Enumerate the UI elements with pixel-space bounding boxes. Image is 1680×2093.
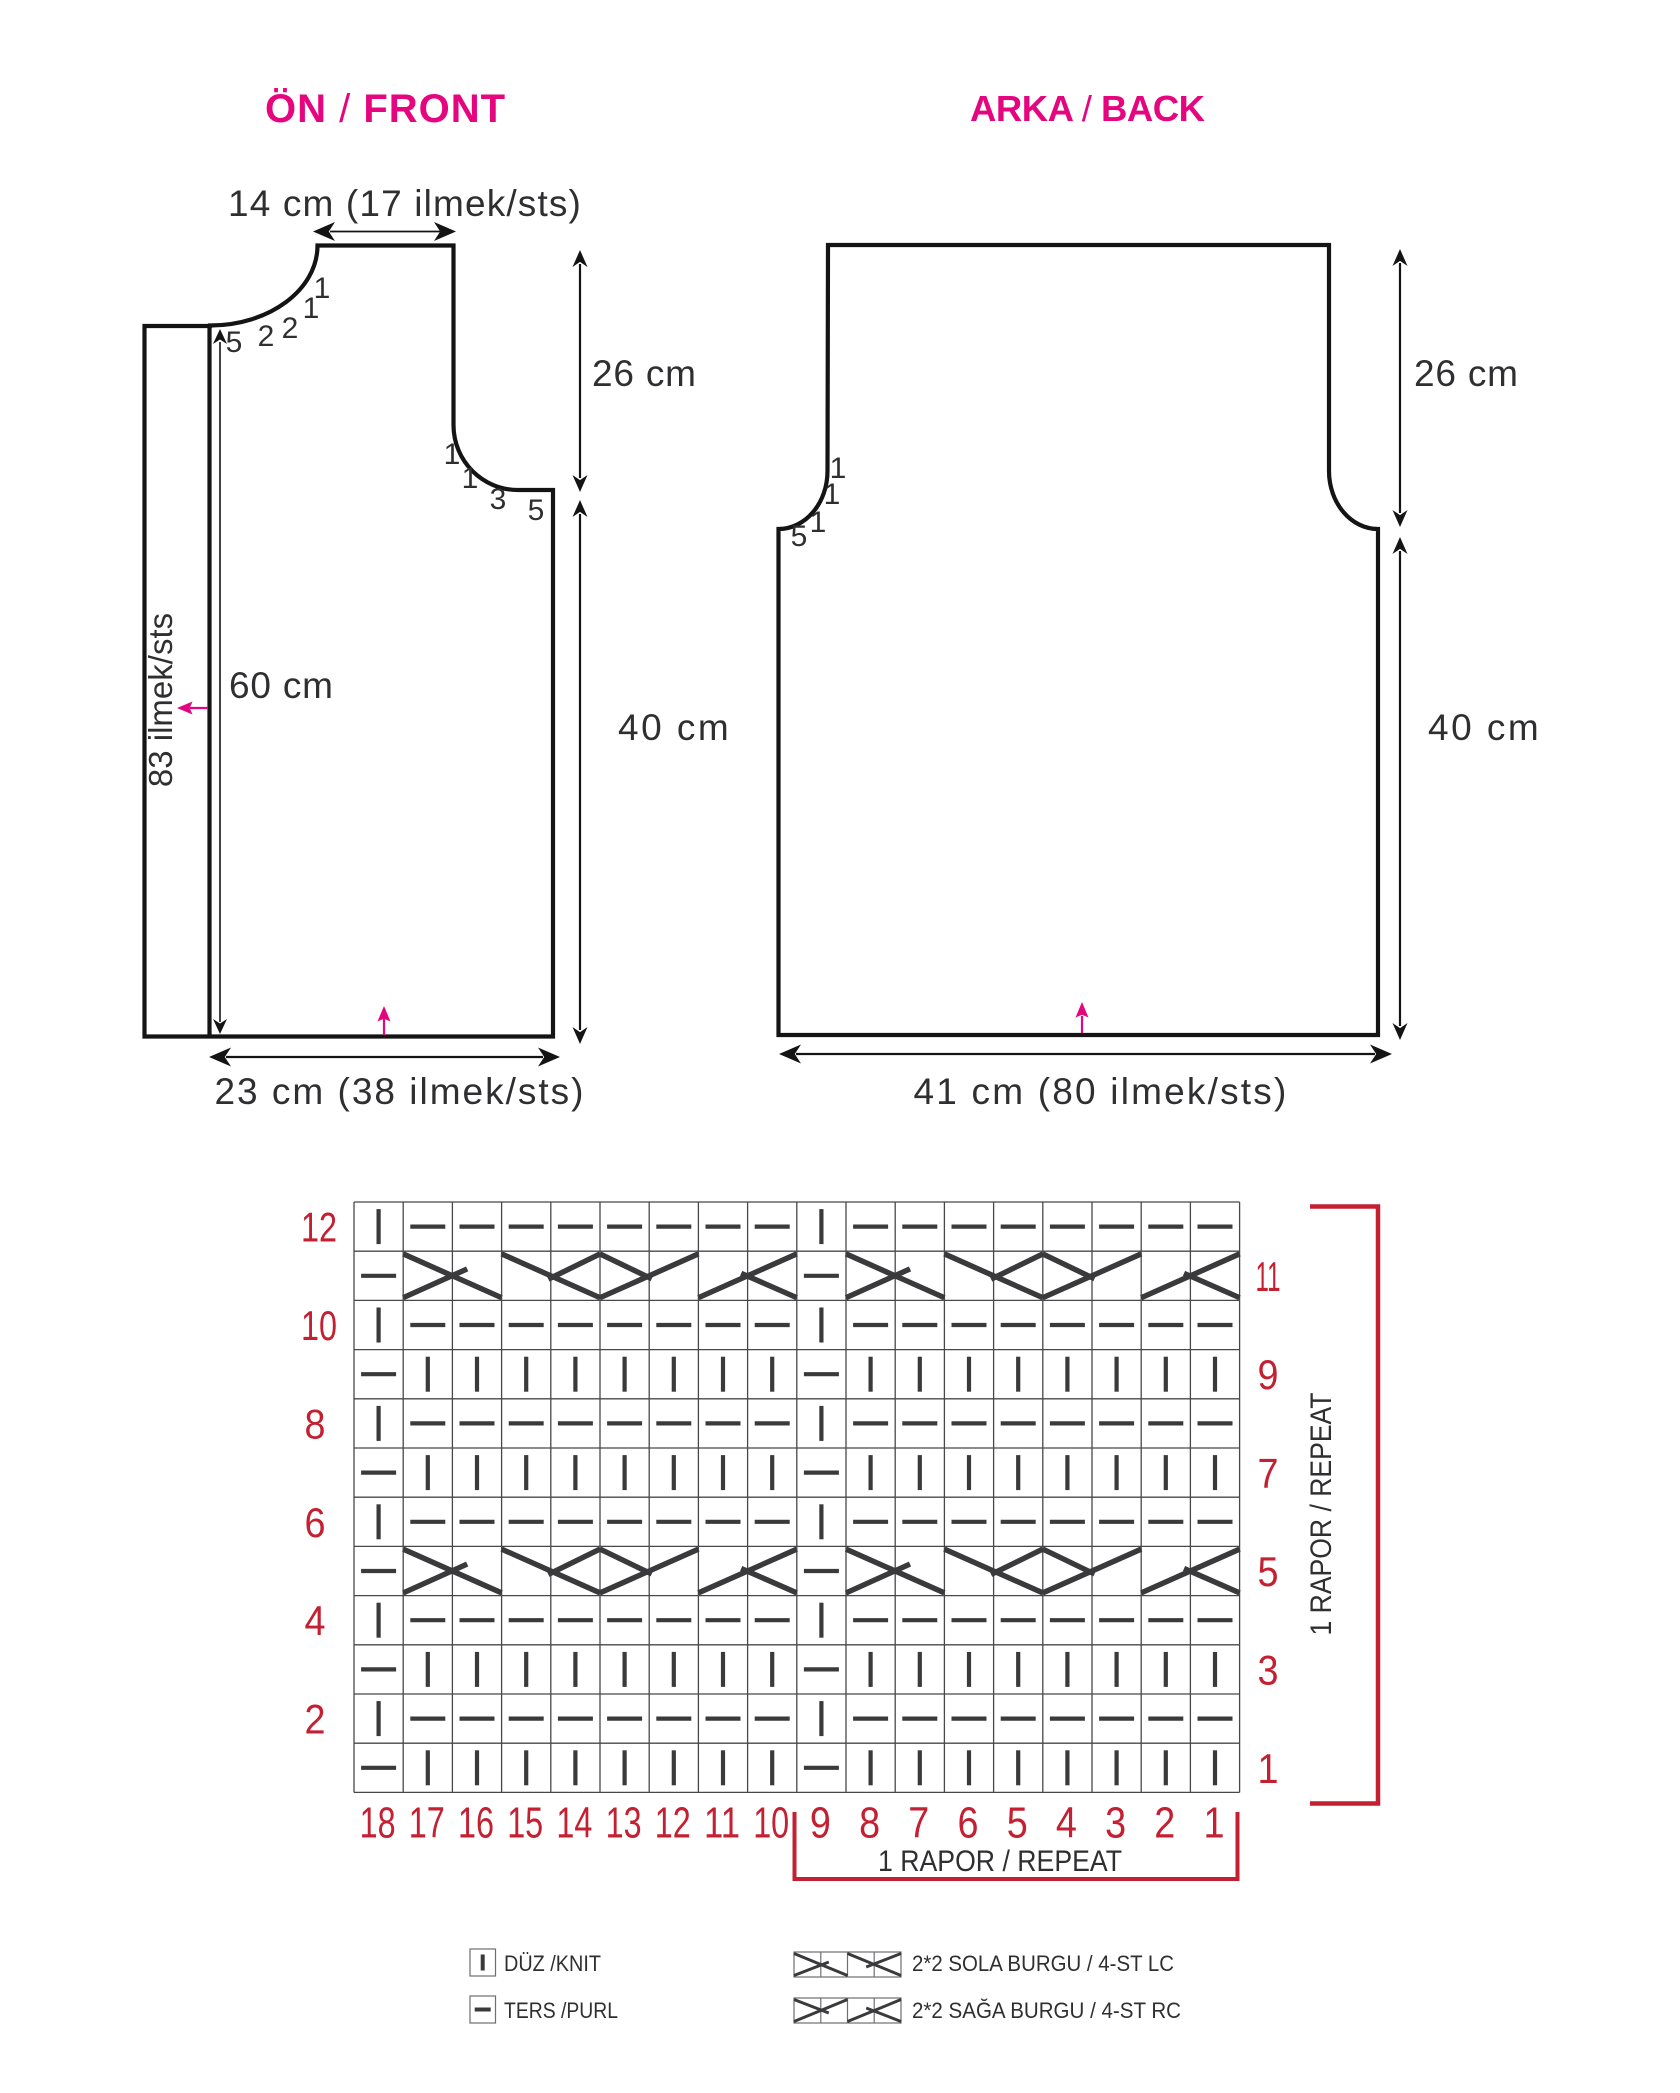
svg-text:12: 12	[655, 1798, 691, 1847]
svg-text:6: 6	[305, 1499, 326, 1546]
svg-text:3: 3	[1258, 1646, 1279, 1693]
svg-text:7: 7	[908, 1798, 929, 1847]
svg-text:2: 2	[305, 1696, 326, 1743]
svg-text:5: 5	[226, 326, 243, 359]
svg-text:DÜZ /KNIT: DÜZ /KNIT	[504, 1951, 601, 1976]
svg-text:2*2 SOLA BURGU / 4-ST LC: 2*2 SOLA BURGU / 4-ST LC	[912, 1951, 1174, 1976]
svg-text:5: 5	[528, 494, 545, 527]
svg-text:5: 5	[1258, 1548, 1279, 1595]
svg-text:11: 11	[1256, 1253, 1281, 1300]
svg-text:26 cm: 26 cm	[1414, 353, 1519, 394]
svg-text:1: 1	[314, 272, 331, 305]
svg-text:1: 1	[444, 438, 461, 471]
svg-text:7: 7	[1258, 1450, 1279, 1497]
svg-text:5: 5	[791, 520, 808, 553]
svg-text:9: 9	[810, 1798, 831, 1847]
svg-text:12: 12	[301, 1204, 337, 1251]
svg-text:40 cm: 40 cm	[618, 707, 731, 748]
svg-text:83 ilmek/sts: 83 ilmek/sts	[142, 613, 179, 787]
svg-text:5: 5	[1007, 1798, 1028, 1847]
svg-text:17: 17	[409, 1798, 445, 1847]
svg-text:16: 16	[458, 1798, 494, 1847]
svg-text:26 cm: 26 cm	[592, 353, 697, 394]
svg-text:40 cm: 40 cm	[1428, 707, 1541, 748]
svg-text:8: 8	[305, 1400, 326, 1447]
svg-text:23 cm (38 ilmek/sts): 23 cm (38 ilmek/sts)	[214, 1071, 585, 1112]
svg-text:3: 3	[1105, 1798, 1126, 1847]
svg-text:11: 11	[704, 1798, 740, 1847]
svg-text:1: 1	[810, 506, 827, 539]
svg-text:1: 1	[1204, 1798, 1225, 1847]
svg-text:13: 13	[606, 1798, 642, 1847]
svg-text:2: 2	[282, 312, 299, 345]
svg-text:4: 4	[305, 1597, 326, 1644]
svg-text:9: 9	[1258, 1351, 1279, 1398]
svg-text:6: 6	[958, 1798, 979, 1847]
svg-text:10: 10	[753, 1798, 789, 1847]
svg-text:1: 1	[462, 462, 479, 495]
svg-text:2*2 SAĞA BURGU / 4-ST RC: 2*2 SAĞA BURGU / 4-ST RC	[912, 1998, 1181, 2023]
svg-text:60 cm: 60 cm	[229, 665, 334, 706]
svg-text:8: 8	[859, 1798, 880, 1847]
svg-text:2: 2	[258, 320, 275, 353]
svg-text:10: 10	[301, 1302, 337, 1349]
svg-text:ÖN / FRONT: ÖN / FRONT	[265, 86, 506, 131]
svg-text:18: 18	[360, 1798, 396, 1847]
svg-text:1: 1	[1258, 1745, 1279, 1792]
svg-text:14: 14	[556, 1798, 592, 1847]
svg-text:TERS /PURL: TERS /PURL	[504, 1998, 618, 2023]
svg-text:3: 3	[490, 483, 507, 516]
svg-text:41 cm (80 ilmek/sts): 41 cm (80 ilmek/sts)	[913, 1071, 1288, 1112]
svg-text:1 RAPOR / REPEAT: 1 RAPOR / REPEAT	[878, 1845, 1122, 1878]
svg-text:4: 4	[1056, 1798, 1077, 1847]
svg-text:15: 15	[507, 1798, 543, 1847]
svg-text:ARKA / BACK: ARKA / BACK	[970, 88, 1206, 129]
svg-text:1 RAPOR / REPEAT: 1 RAPOR / REPEAT	[1305, 1393, 1338, 1636]
svg-text:14 cm (17 ilmek/sts): 14 cm (17 ilmek/sts)	[228, 183, 582, 224]
svg-text:2: 2	[1154, 1798, 1175, 1847]
